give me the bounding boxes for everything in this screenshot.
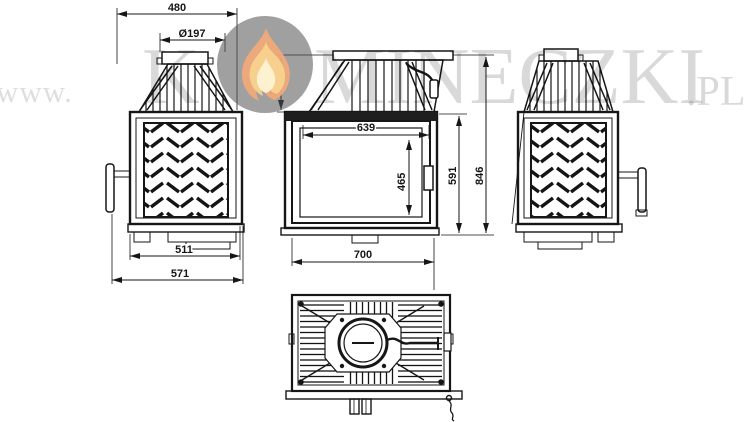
dim-label-480: 480	[168, 2, 186, 14]
body-left	[130, 112, 242, 224]
door-handle-right	[618, 168, 647, 216]
dim-label-846: 846	[474, 167, 486, 185]
dim-label-591: 591	[447, 167, 459, 185]
door-handle-left	[106, 164, 130, 212]
view-front	[277, 51, 494, 290]
damper-lever	[406, 63, 438, 98]
flame-icon	[235, 26, 295, 104]
dim-label-511: 511	[175, 244, 193, 256]
dim-label-639: 639	[357, 122, 375, 134]
technical-drawing-page: 480 Ø197 511 571 211 639 465 591 846 700…	[0, 0, 750, 422]
bottom-base	[286, 391, 462, 414]
brand-logo-circle	[217, 16, 313, 113]
flue-opening-plan	[325, 314, 401, 372]
hood-front	[309, 58, 443, 114]
dim-front-total-width	[292, 238, 434, 290]
dim-label-197: Ø197	[179, 28, 206, 40]
flue-collar-right	[539, 49, 583, 61]
view-side-right	[512, 49, 647, 249]
view-bottom	[286, 295, 462, 421]
flue-collar-left	[157, 52, 213, 64]
dim-label-700: 700	[354, 249, 372, 261]
base-right	[516, 224, 622, 249]
dim-label-465: 465	[396, 173, 408, 191]
fireplace-insert-drawing: 480 Ø197 511 571 211 639 465 591 846 700	[0, 0, 750, 422]
dim-label-571: 571	[171, 268, 189, 280]
body-right	[518, 112, 618, 224]
